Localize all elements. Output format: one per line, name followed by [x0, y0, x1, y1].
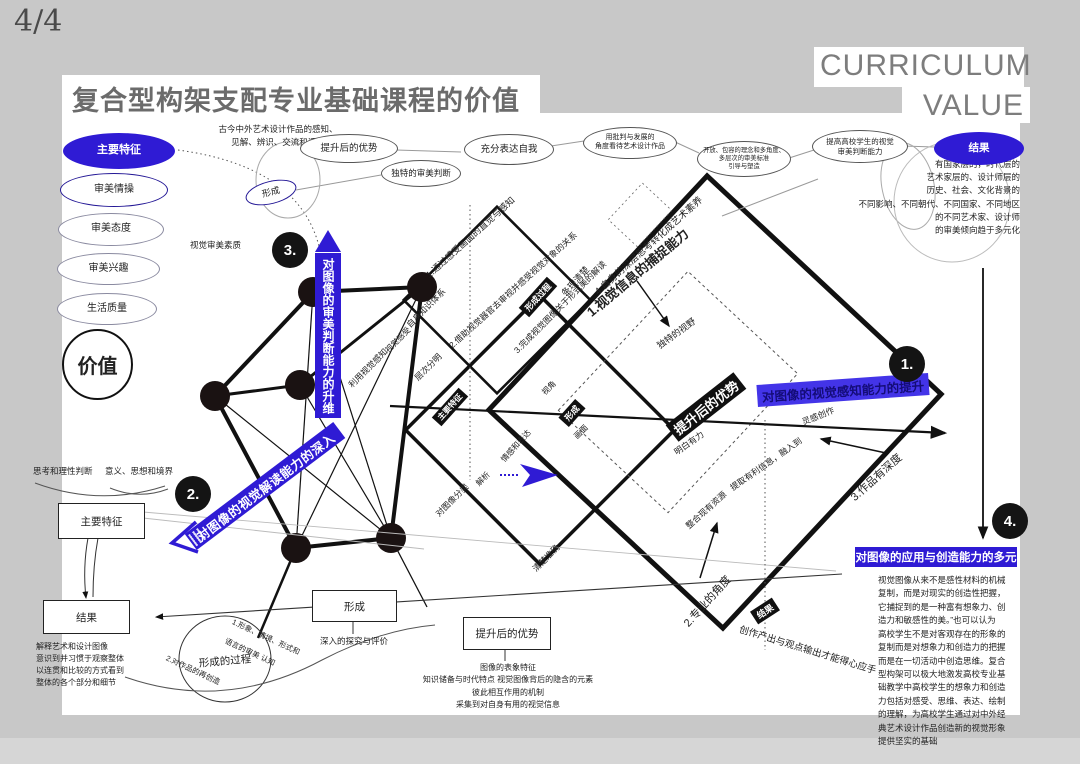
step-badge: 2.: [175, 476, 211, 512]
form-box: 形成: [312, 590, 397, 622]
feature-oval: 审美兴趣: [57, 253, 160, 285]
banner-creation-diverse: 对图像的应用与创造能力的多元: [855, 547, 1017, 567]
banner-judgement-upgrade: 对图像的审美判断能力的升维: [315, 253, 341, 418]
resource-up-arrow: [700, 523, 717, 578]
visual-quality-note: 视觉审美素质: [190, 239, 241, 252]
flow-oval: 提升后的优势: [300, 134, 398, 163]
meaning-label: 意义、思想和境界: [105, 465, 173, 478]
form-note: 深入的探究与评价: [320, 635, 388, 648]
feature-oval: 主要特征: [63, 133, 175, 169]
step-badge: 3.: [272, 232, 308, 268]
left-small-arrow: [821, 439, 886, 453]
flow-oval: 充分表达自我: [464, 134, 554, 165]
feature-oval: 审美情操: [60, 173, 168, 207]
step-badge: 4.: [992, 503, 1028, 539]
flow-oval: 提高高校学生的视觉 审美判断能力: [812, 130, 908, 163]
result-note: 解释艺术和设计图像 意识到并习惯于观察整体 以连贯和比较的方式看到 整体的各个部…: [36, 641, 161, 689]
creation-paragraph: 视觉图像从来不是感性材料的机械 复制，而是对现实的创造性把握， 它捕捉到的是一种…: [878, 574, 1014, 748]
mid-square: [406, 296, 675, 565]
step-badge: 1.: [889, 346, 925, 382]
feature-oval: 生活质量: [57, 293, 157, 325]
feature-oval: 审美态度: [58, 213, 164, 246]
flow-oval: 结果: [934, 132, 1024, 165]
fan-lines: [143, 512, 836, 571]
advantage-box: 提升后的优势: [463, 617, 551, 650]
vision-down-arrow: [637, 281, 669, 326]
main-axis-arrow: [390, 406, 945, 433]
feature-box: 主要特征: [58, 503, 145, 539]
curriculum-value-poster: { "page": { "indicator": "4/4", "title":…: [0, 0, 1080, 764]
advantage-note: 图像的表象特征 知识储备与时代特点 视觉图像背后的隐含的元素 彼此相互作用的机制…: [415, 662, 601, 712]
flow-oval: 用批判与发展的 角度看待艺术设计作品: [583, 127, 677, 159]
result-paragraph: 有国家层的，时代层的 艺术家层的、设计师层的 历史、社会、文化背景的 不同影响、…: [850, 158, 1020, 237]
flow-oval: 开放、包容的理念和多角度、 多层次的审美标准 引导与塑造: [697, 141, 791, 177]
result-box: 结果: [43, 600, 130, 634]
feature-to-result-arrow: [85, 538, 88, 598]
flow-oval: 独特的审美判断: [381, 160, 461, 187]
think-label: 思考和理性判断: [33, 465, 93, 478]
value-circle: 价值: [62, 329, 133, 400]
